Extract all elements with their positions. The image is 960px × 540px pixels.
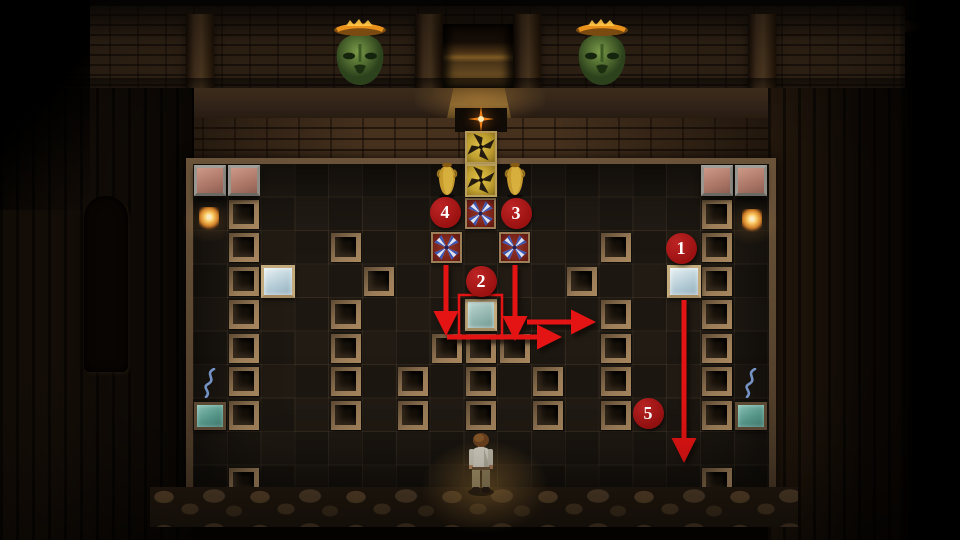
recessed-floor-tile [229,367,259,396]
snake-mark [742,368,760,398]
gold-pinwheel-block[interactable] [465,164,497,197]
green-mask-icon [574,18,630,88]
recessed-floor-tile [702,200,732,229]
recessed-floor-tile [229,334,259,363]
pink-stone-block[interactable] [701,165,733,196]
recessed-floor-tile [533,401,563,430]
recessed-floor-tile [398,401,428,430]
torch-light [199,207,219,231]
red-pinwheel-block[interactable] [431,232,462,263]
recessed-floor-tile [601,300,631,329]
recessed-floor-tile [229,200,259,229]
recessed-floor-tile [229,300,259,329]
gold-pinwheel-block[interactable] [465,131,497,164]
recessed-floor-tile [601,367,631,396]
recessed-floor-tile [398,367,428,396]
vase [504,161,526,198]
recessed-floor-tile [331,300,361,329]
torch-light [742,209,762,233]
pink-stone-block[interactable] [735,165,767,196]
recessed-floor-tile [702,267,732,296]
recessed-floor-tile [702,401,732,430]
teal-tile[interactable] [194,402,226,430]
green-mask-icon [332,18,388,88]
recessed-floor-tile [331,233,361,262]
recessed-floor-tile [466,401,496,430]
recessed-floor-tile [229,267,259,296]
red-pinwheel-block[interactable] [465,198,496,229]
snake-mark [201,368,219,398]
recessed-floor-tile [533,367,563,396]
red-pinwheel-block[interactable] [499,232,530,263]
recessed-floor-tile [702,300,732,329]
recessed-floor-tile [229,233,259,262]
recessed-floor-tile [567,267,597,296]
player-character [464,432,498,496]
pink-stone-block[interactable] [228,165,260,196]
recessed-floor-tile [331,367,361,396]
recessed-floor-tile [432,334,462,363]
recessed-floor-tile [601,334,631,363]
spark-icon [467,105,495,133]
recessed-floor-tile [601,233,631,262]
recessed-floor-tile [331,334,361,363]
recessed-floor-tile [229,401,259,430]
ice-tile[interactable] [667,265,701,298]
recessed-floor-tile [702,334,732,363]
recessed-floor-tile [500,334,530,363]
recessed-floor-tile [331,401,361,430]
ice-tile-target[interactable] [465,299,497,331]
recessed-floor-tile [364,267,394,296]
recessed-floor-tile [702,233,732,262]
recessed-floor-tile [466,334,496,363]
game-screen: 12345 [0,0,960,540]
recessed-floor-tile [702,367,732,396]
teal-tile[interactable] [735,402,767,430]
pink-stone-block[interactable] [194,165,226,196]
ice-tile[interactable] [261,265,295,298]
recessed-floor-tile [601,401,631,430]
vase [436,161,458,198]
recessed-floor-tile [466,367,496,396]
